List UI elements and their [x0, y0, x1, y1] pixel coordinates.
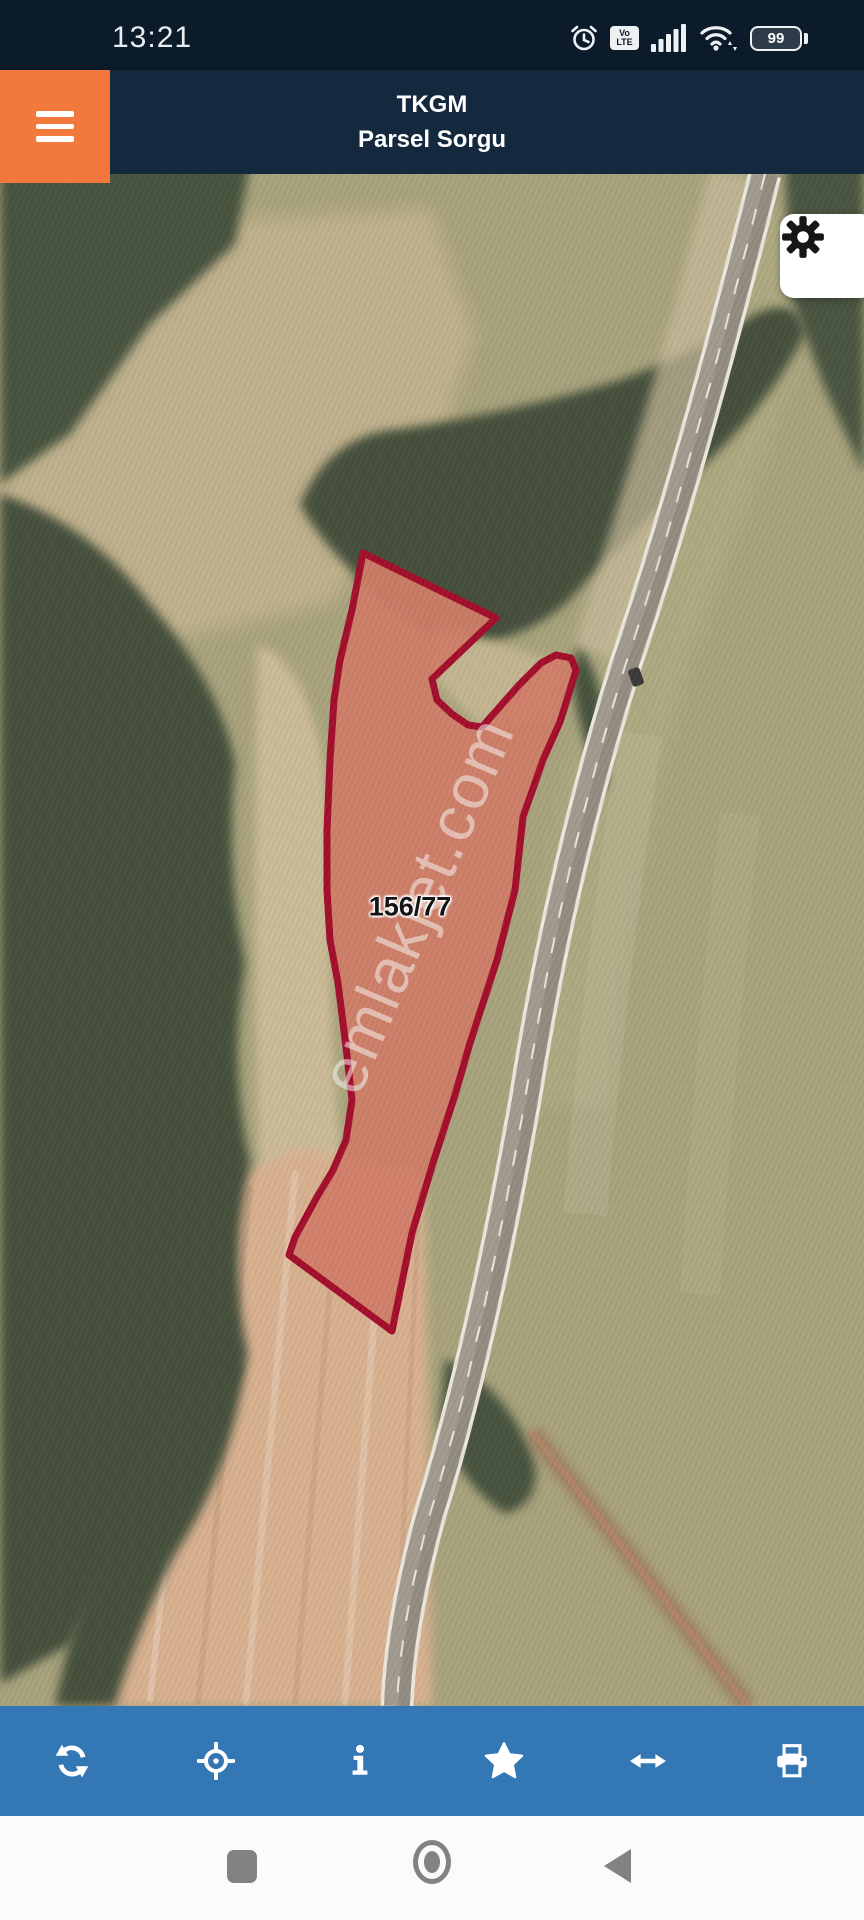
battery-percent: 99 [768, 30, 785, 47]
hamburger-icon [36, 111, 74, 117]
refresh-button[interactable] [0, 1706, 144, 1816]
app-header: TKGM Parsel Sorgu [0, 70, 864, 174]
home-icon[interactable] [413, 1840, 451, 1884]
recents-icon[interactable] [227, 1850, 257, 1883]
status-icons: Vo LTE [569, 23, 808, 53]
print-button[interactable] [720, 1706, 864, 1816]
phone-screen: 13:21 Vo LTE [0, 0, 864, 1920]
clock-text: 13:21 [112, 21, 192, 55]
battery-icon: 99 [750, 26, 808, 51]
gear-icon [780, 214, 826, 260]
locate-button[interactable] [144, 1706, 288, 1816]
app-subtitle: Parsel Sorgu [358, 123, 506, 156]
app-title: TKGM [397, 88, 468, 121]
back-icon[interactable] [604, 1849, 631, 1883]
menu-button[interactable] [0, 70, 110, 183]
measure-button[interactable] [576, 1706, 720, 1816]
alarm-icon [569, 23, 599, 53]
info-icon [341, 1742, 379, 1780]
volte-icon: Vo LTE [610, 26, 639, 50]
favorite-button[interactable] [432, 1706, 576, 1816]
resize-horizontal-icon [629, 1742, 667, 1780]
map-toolbar [0, 1706, 864, 1816]
print-icon [773, 1742, 811, 1780]
android-nav-bar [0, 1816, 864, 1920]
star-icon [484, 1741, 524, 1781]
settings-button[interactable] [780, 214, 864, 298]
map-view[interactable]: emlakjet.com 156/77 [0, 174, 864, 1706]
status-bar: 13:21 Vo LTE [0, 0, 864, 70]
info-button[interactable] [288, 1706, 432, 1816]
locate-crosshair-icon [197, 1742, 235, 1780]
volte-bottom: LTE [616, 38, 632, 47]
refresh-icon [53, 1742, 91, 1780]
parcel-label: 156/77 [369, 892, 452, 923]
wifi-icon [699, 23, 739, 53]
signal-icon [650, 23, 688, 53]
